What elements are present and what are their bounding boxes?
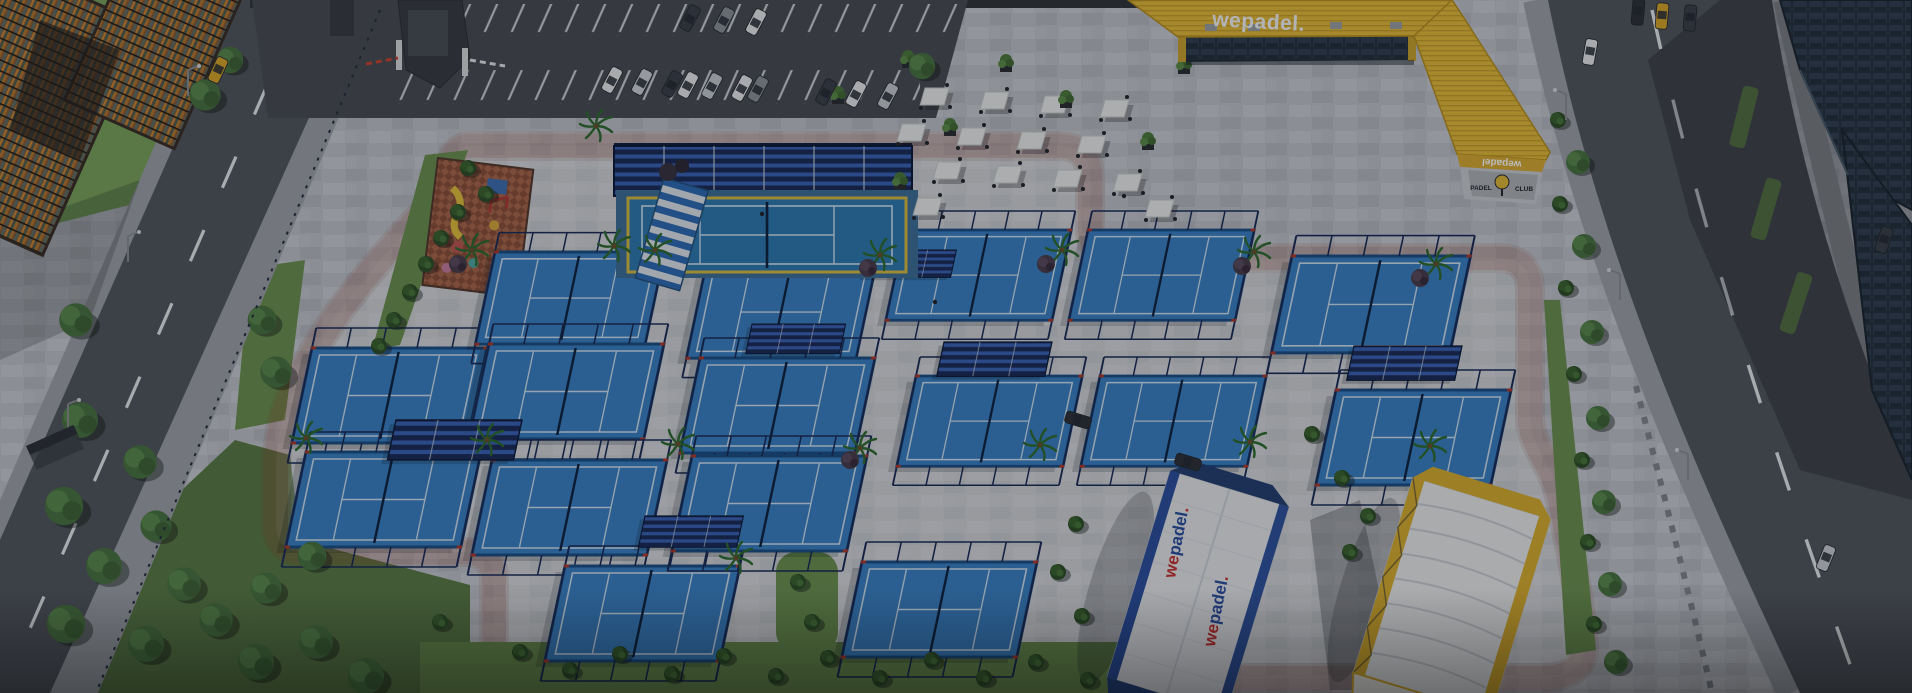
scene-canvas: wepadel. wepadel PADEL CLUB wepadel. wep… [0,0,1912,693]
bottom-vignette [0,0,1912,693]
padel-club-aerial-render: wepadel. wepadel PADEL CLUB wepadel. wep… [0,0,1912,693]
